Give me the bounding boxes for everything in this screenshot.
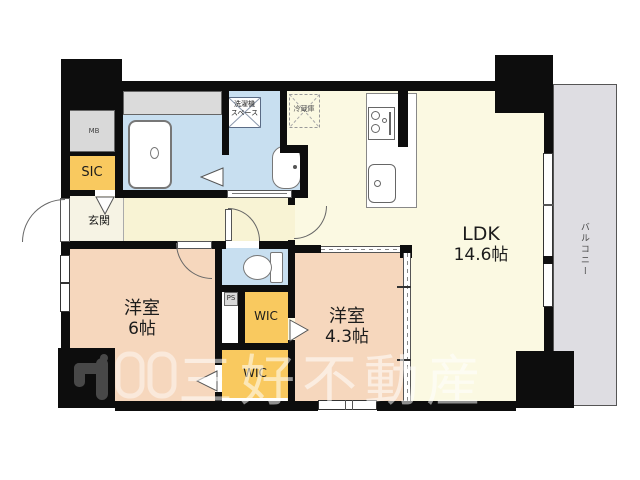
wall-kitchen-stub <box>398 85 408 147</box>
wic-upper-label: WIC <box>241 310 291 323</box>
wall-hall-bottom-a <box>61 241 177 249</box>
wall-right-lower <box>544 307 553 351</box>
floor-plan: LDK 14.6帖 洋室 6帖 洋室 4.3帖 玄関 SIC MB PS WIC… <box>0 0 640 480</box>
wall-right-upper <box>544 113 553 153</box>
stove-grill-icon <box>389 112 391 135</box>
entrance-door-arc <box>22 199 65 242</box>
wall-mb-right <box>115 91 123 198</box>
column-bottom-right <box>516 351 574 408</box>
ldk-window-tick1 <box>543 204 553 206</box>
ldk-window <box>543 153 553 307</box>
partition-bedroom43-top <box>321 246 400 253</box>
laundry-label-line2: スペース <box>226 110 263 118</box>
laundry-label-line1: 洗濯機 <box>226 101 263 109</box>
wall-toilet-bottom <box>215 285 295 292</box>
sink-faucet-icon <box>374 180 381 187</box>
washroom-sliding-door <box>227 190 292 198</box>
partition-tick1 <box>397 286 411 288</box>
room-corridor-floor <box>123 198 295 241</box>
bathtub-drain-icon <box>150 147 159 159</box>
bedroom6-label: 洋室 <box>92 299 192 319</box>
watermark-text: 三好不動産 <box>178 336 488 416</box>
bedroom6-size-label: 6帖 <box>92 320 192 339</box>
wall-left-low <box>61 312 70 352</box>
stove-burner2-icon <box>371 124 380 133</box>
fridge-label: 冷蔵庫 <box>286 106 322 114</box>
ldk-window-tick2 <box>543 256 553 264</box>
genkan-label: 玄関 <box>74 215 124 227</box>
mb-label: MB <box>79 128 109 136</box>
ldk-size-label: 14.6帖 <box>431 246 531 265</box>
wall-ldk-door-stub <box>288 198 295 205</box>
wall-mb-sic-divider <box>69 152 115 156</box>
kitchen-sink-icon <box>368 164 396 203</box>
ps-label: PS <box>221 295 241 303</box>
watermark-logo <box>60 348 185 404</box>
ldk-label: LDK <box>431 224 531 245</box>
wall-ldk-door-stub-low <box>288 240 295 248</box>
bedroom6-window-tick <box>60 282 70 284</box>
balcony-label: バルコニー <box>578 222 588 277</box>
wall-top <box>122 81 495 91</box>
column-top-right <box>495 55 553 113</box>
sic-label: SIC <box>67 166 117 180</box>
column-top-left <box>61 59 122 110</box>
wall-corridor-top-right <box>292 190 308 198</box>
sic-opening-triangle <box>95 196 115 216</box>
wall-wash-jog <box>280 145 308 153</box>
washbasin-faucet-icon <box>293 165 297 169</box>
bedroom43-label: 洋室 <box>297 307 397 327</box>
wall-wash-right-top <box>280 91 287 145</box>
wall-corridor-top-left <box>115 190 227 198</box>
storage-above-bath <box>123 91 222 115</box>
stove-burner3-icon <box>382 118 387 123</box>
washroom-sliding-door-track <box>232 193 287 194</box>
toilet-bowl-icon <box>243 255 272 280</box>
stove-burner1-icon <box>371 111 380 120</box>
bath-door-triangle <box>200 167 224 187</box>
wall-sic-bottom <box>69 190 95 196</box>
wall-mid-right-upper <box>288 248 295 318</box>
